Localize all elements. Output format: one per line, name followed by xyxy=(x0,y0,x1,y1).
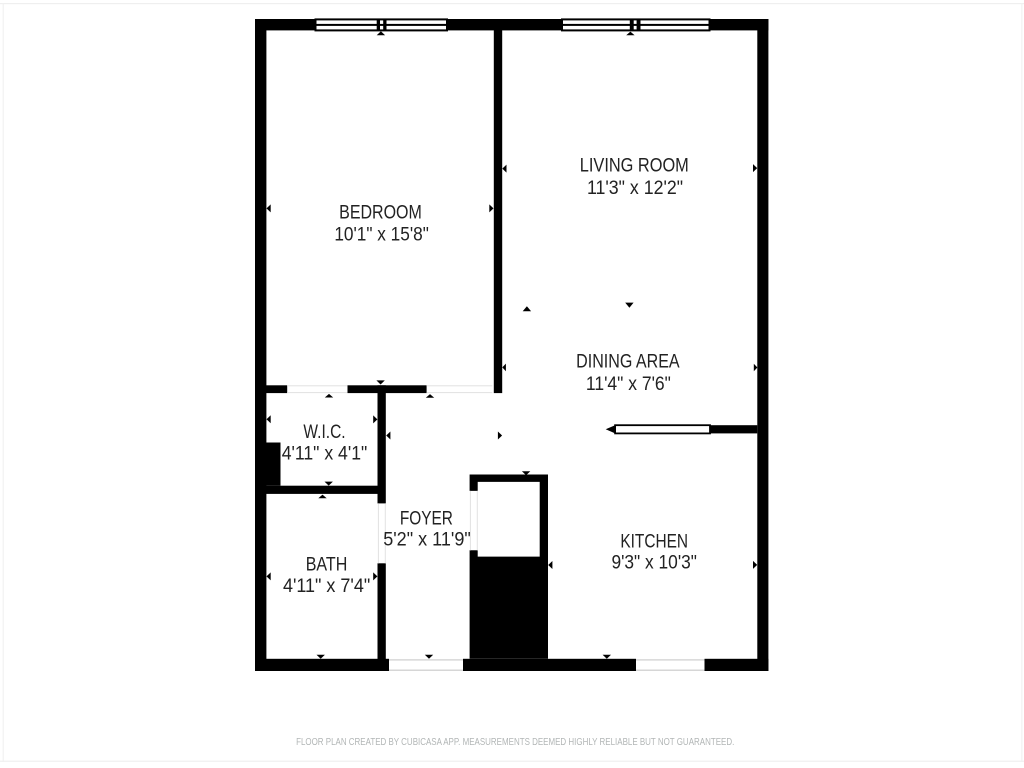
svg-text:LIVING ROOM: LIVING ROOM xyxy=(580,155,689,177)
svg-text:DINING AREA: DINING AREA xyxy=(576,350,680,372)
svg-text:11'3" x 12'2": 11'3" x 12'2" xyxy=(587,177,683,199)
svg-text:BEDROOM: BEDROOM xyxy=(339,201,422,223)
svg-text:FLOOR PLAN CREATED BY CUBICASA: FLOOR PLAN CREATED BY CUBICASA APP. MEAS… xyxy=(296,737,734,748)
svg-text:W.I.C.: W.I.C. xyxy=(303,421,345,443)
svg-text:4'11" x 4'1": 4'11" x 4'1" xyxy=(282,443,368,465)
svg-text:BATH: BATH xyxy=(306,554,348,576)
svg-text:9'3" x 10'3": 9'3" x 10'3" xyxy=(611,552,697,574)
svg-text:FOYER: FOYER xyxy=(400,507,453,529)
svg-text:5'2" x 11'9": 5'2" x 11'9" xyxy=(383,528,471,550)
svg-text:KITCHEN: KITCHEN xyxy=(620,531,688,553)
svg-text:10'1" x 15'8": 10'1" x 15'8" xyxy=(334,223,429,245)
svg-text:11'4" x 7'6": 11'4" x 7'6" xyxy=(586,373,671,395)
svg-text:4'11" x 7'4": 4'11" x 7'4" xyxy=(283,575,370,597)
